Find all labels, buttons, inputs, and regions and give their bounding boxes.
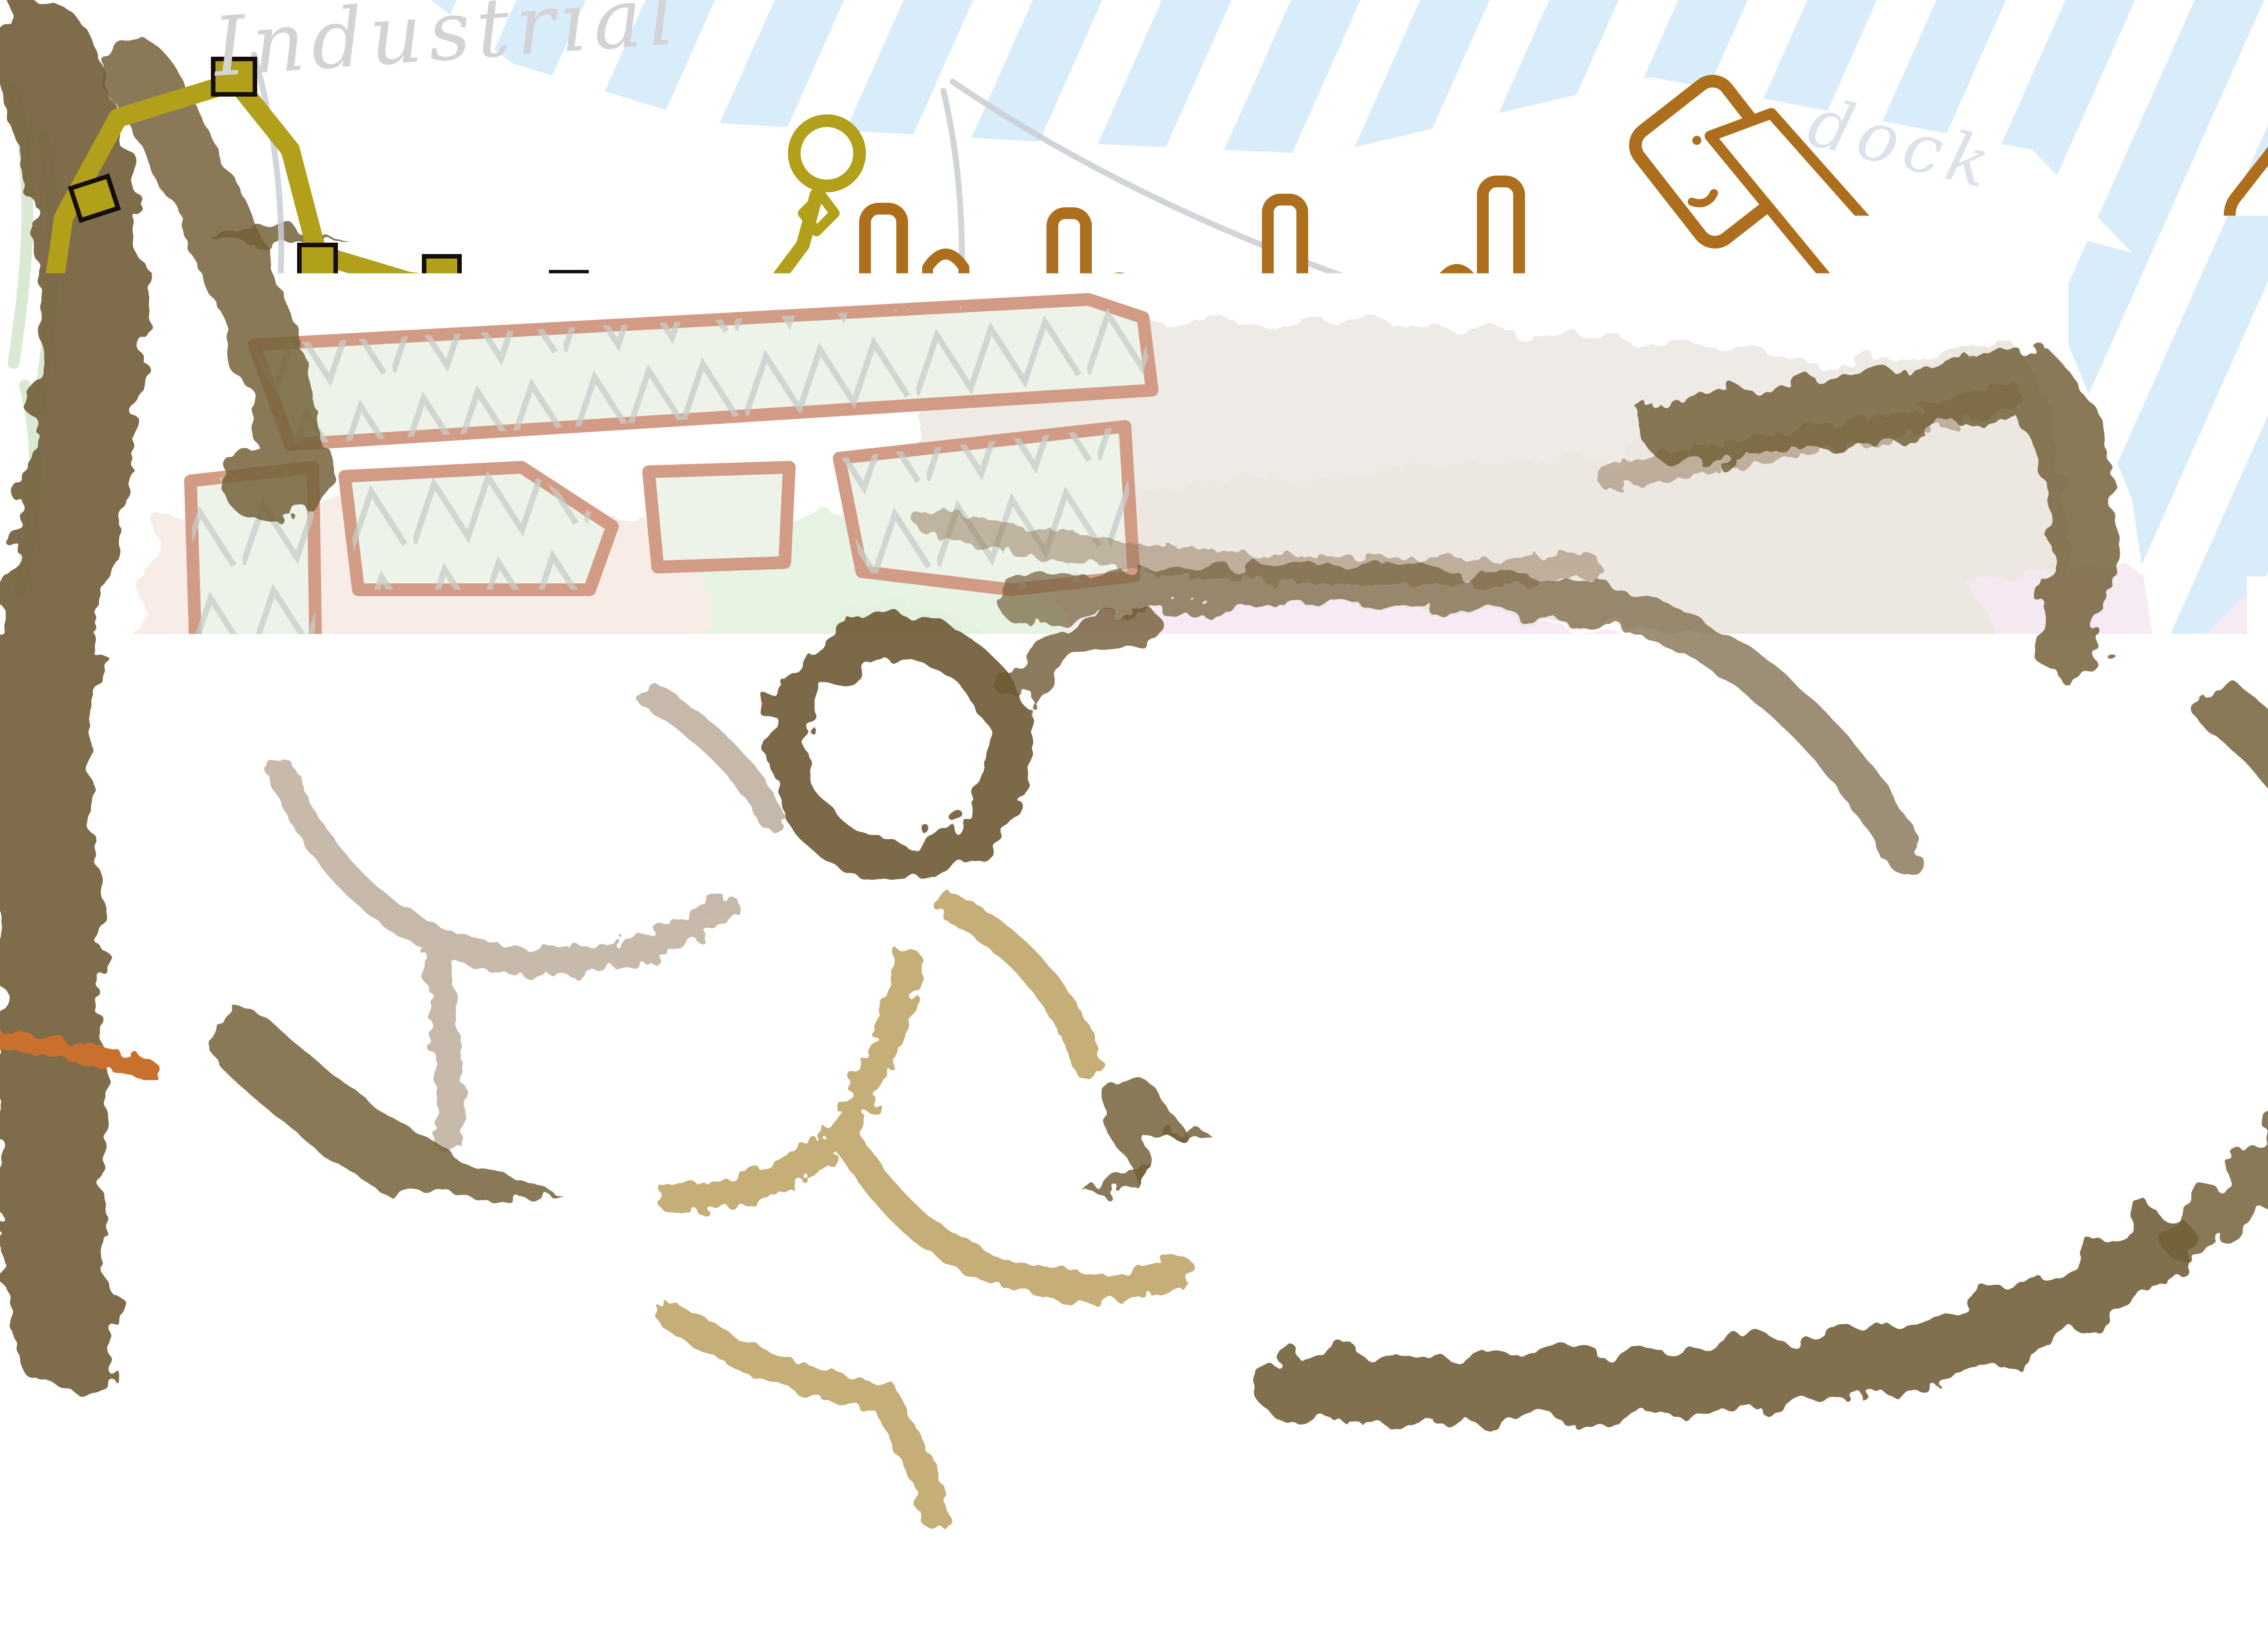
grove-gate xyxy=(864,890,952,964)
courtyard-hatched xyxy=(1365,1016,1560,1225)
map-drawing xyxy=(0,0,2268,1644)
henge-center xyxy=(887,738,910,762)
east-barge xyxy=(2117,581,2268,657)
fantasy-city-map: Industrial dock Castle High wage Beach xyxy=(0,0,2268,1644)
castle-fields xyxy=(1569,950,2005,1275)
